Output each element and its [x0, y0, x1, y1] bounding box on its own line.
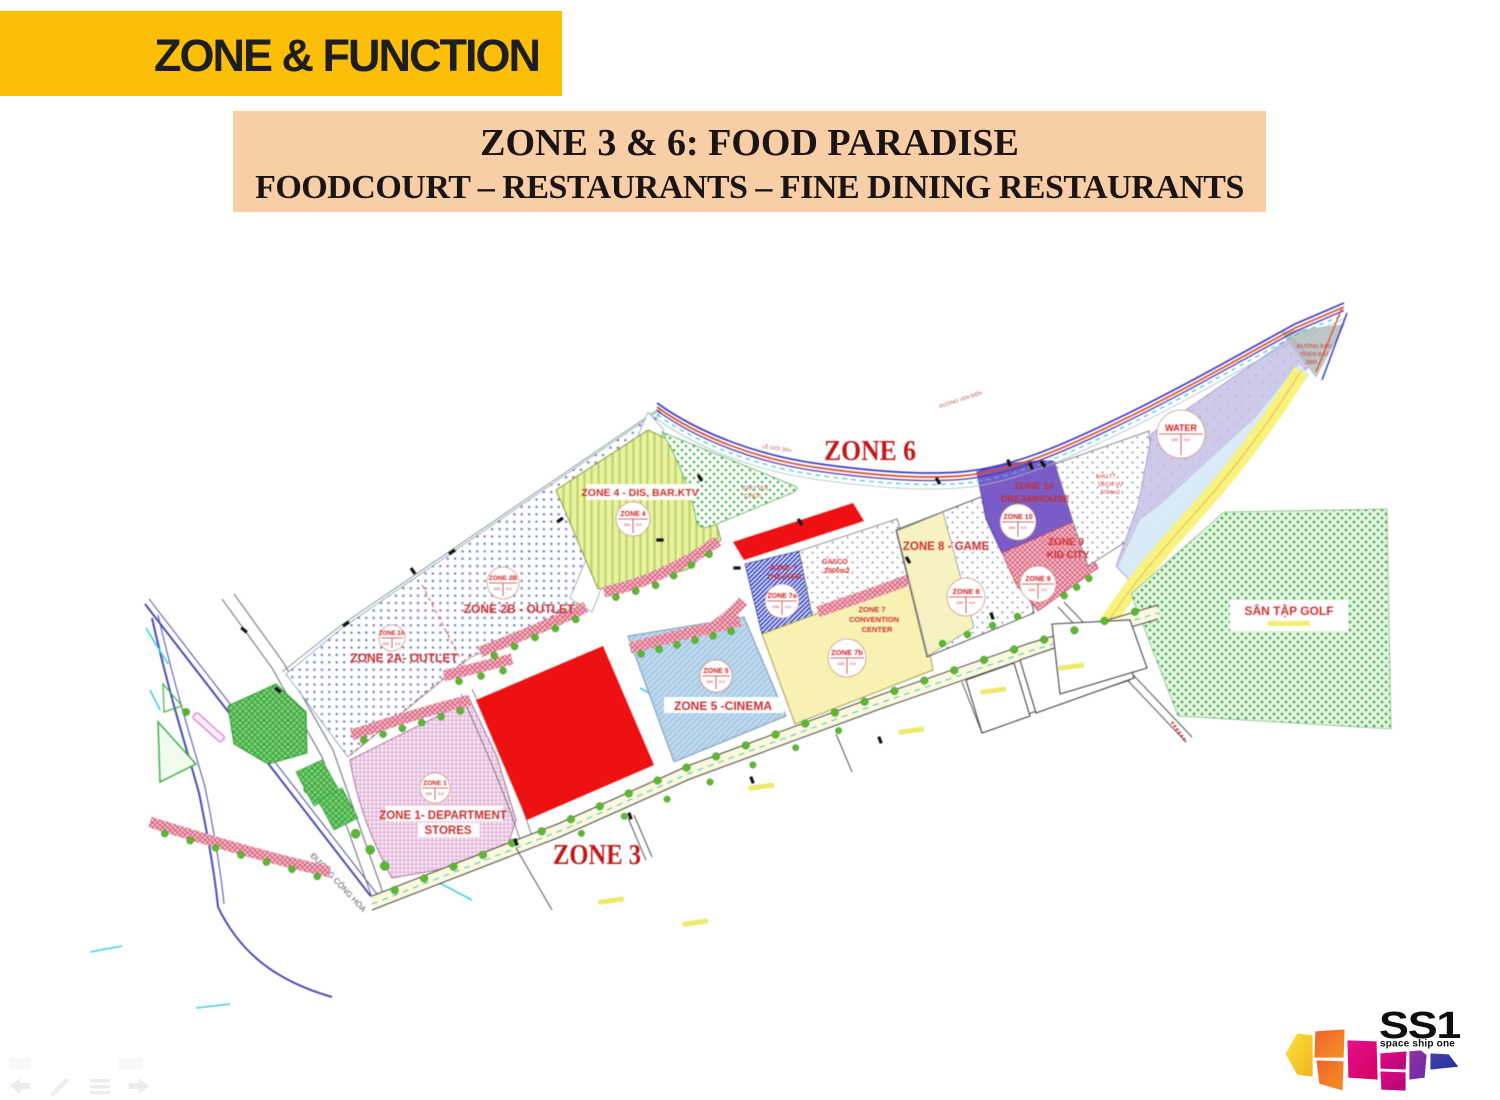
svg-text:ZONE 3: ZONE 3 — [553, 840, 641, 871]
svg-text:2000m2: 2000m2 — [824, 568, 850, 575]
svg-text:space ship one: space ship one — [1380, 1039, 1455, 1050]
svg-text:GASCO: GASCO — [822, 559, 848, 566]
svg-text:TRIỂN ĐẤT: TRIỂN ĐẤT — [1300, 351, 1330, 358]
svg-text:ZONE 4 - DIS, BAR.KTV: ZONE 4 - DIS, BAR.KTV — [581, 487, 698, 499]
svg-text:ZONE 8: ZONE 8 — [952, 587, 979, 596]
svg-text:4.0: 4.0 — [1021, 525, 1027, 530]
svg-text:ĐƯỜNG V EN BIỂN: ĐƯỜNG V EN BIỂN — [938, 389, 983, 409]
svg-text:THEATER: THEATER — [767, 572, 802, 581]
svg-text:ZONE 8 - GAME: ZONE 8 - GAME — [903, 541, 990, 553]
svg-text:4.0: 4.0 — [719, 679, 725, 684]
svg-text:ZONE 2A: ZONE 2A — [379, 631, 406, 637]
svg-text:ZONE 6: ZONE 6 — [824, 435, 916, 467]
svg-text:CENTER: CENTER — [862, 625, 893, 634]
svg-text:ZONE 5 -CINEMA: ZONE 5 -CINEMA — [674, 699, 772, 713]
svg-text:100: 100 — [493, 586, 500, 591]
svg-text:KID CITY: KID CITY — [1047, 550, 1090, 561]
svg-text:CONVENTION: CONVENTION — [849, 615, 899, 624]
svg-text:ZONE 5: ZONE 5 — [703, 668, 728, 675]
svg-text:CHƠI: CHƠI — [744, 493, 761, 500]
svg-text:2000: 2000 — [1305, 360, 1317, 366]
svg-text:100: 100 — [382, 641, 389, 646]
svg-text:ZONE 7b: ZONE 7b — [831, 648, 863, 657]
svg-text:ZONE 10: ZONE 10 — [1003, 514, 1032, 521]
svg-text:100: 100 — [425, 791, 432, 796]
svg-text:100: 100 — [956, 600, 963, 605]
svg-text:100: 100 — [706, 679, 713, 684]
svg-text:100: 100 — [837, 661, 844, 666]
svg-text:4.0: 4.0 — [438, 791, 444, 796]
svg-text:4.0: 4.0 — [1184, 437, 1190, 442]
svg-text:2784m2: 2784m2 — [1100, 490, 1120, 496]
svg-text:SÂN TẬP GOLF: SÂN TẬP GOLF — [1244, 603, 1333, 618]
svg-text:100: 100 — [623, 522, 630, 527]
svg-text:DẸCH VỤ: DẸCH VỤ — [1098, 482, 1123, 488]
svg-text:ZONE 4: ZONE 4 — [620, 511, 645, 518]
svg-text:ZONE 2A- OUTLET: ZONE 2A- OUTLET — [350, 651, 458, 665]
svg-text:ZONE 10: ZONE 10 — [1014, 481, 1054, 492]
svg-text:ZONE 9: ZONE 9 — [1025, 576, 1050, 583]
svg-text:ZONE 9: ZONE 9 — [1048, 537, 1085, 548]
svg-text:ZONE 1- DEPARTMENT: ZONE 1- DEPARTMENT — [379, 810, 507, 822]
svg-text:4.0: 4.0 — [850, 661, 856, 666]
svg-text:ZONE 7: ZONE 7 — [858, 605, 885, 614]
svg-text:DREAMHOUSE: DREAMHOUSE — [1001, 494, 1070, 505]
svg-text:ZONE 7: ZONE 7 — [769, 563, 796, 572]
svg-text:4.0: 4.0 — [785, 604, 791, 609]
svg-text:100: 100 — [1008, 525, 1015, 530]
svg-text:4.0: 4.0 — [1041, 587, 1047, 592]
svg-text:ZONE 1: ZONE 1 — [423, 780, 447, 787]
svg-text:ZONE 2B - OUTLET: ZONE 2B - OUTLET — [464, 602, 575, 616]
svg-text:4.0: 4.0 — [395, 641, 401, 646]
svg-text:STORES: STORES — [424, 825, 471, 837]
svg-text:4.0: 4.0 — [969, 600, 975, 605]
svg-text:100: 100 — [772, 604, 779, 609]
svg-text:100: 100 — [1171, 437, 1178, 442]
svg-text:100: 100 — [1028, 587, 1035, 592]
svg-text:WATER: WATER — [1165, 423, 1197, 433]
svg-text:ZONE 7a: ZONE 7a — [767, 593, 796, 600]
svg-text:ZONE 2B: ZONE 2B — [489, 575, 517, 582]
svg-text:4.0: 4.0 — [636, 522, 642, 527]
svg-text:4.0: 4.0 — [506, 586, 512, 591]
svg-text:KHU TT: KHU TT — [1096, 474, 1116, 480]
svg-text:KHU VUI: KHU VUI — [742, 485, 769, 492]
